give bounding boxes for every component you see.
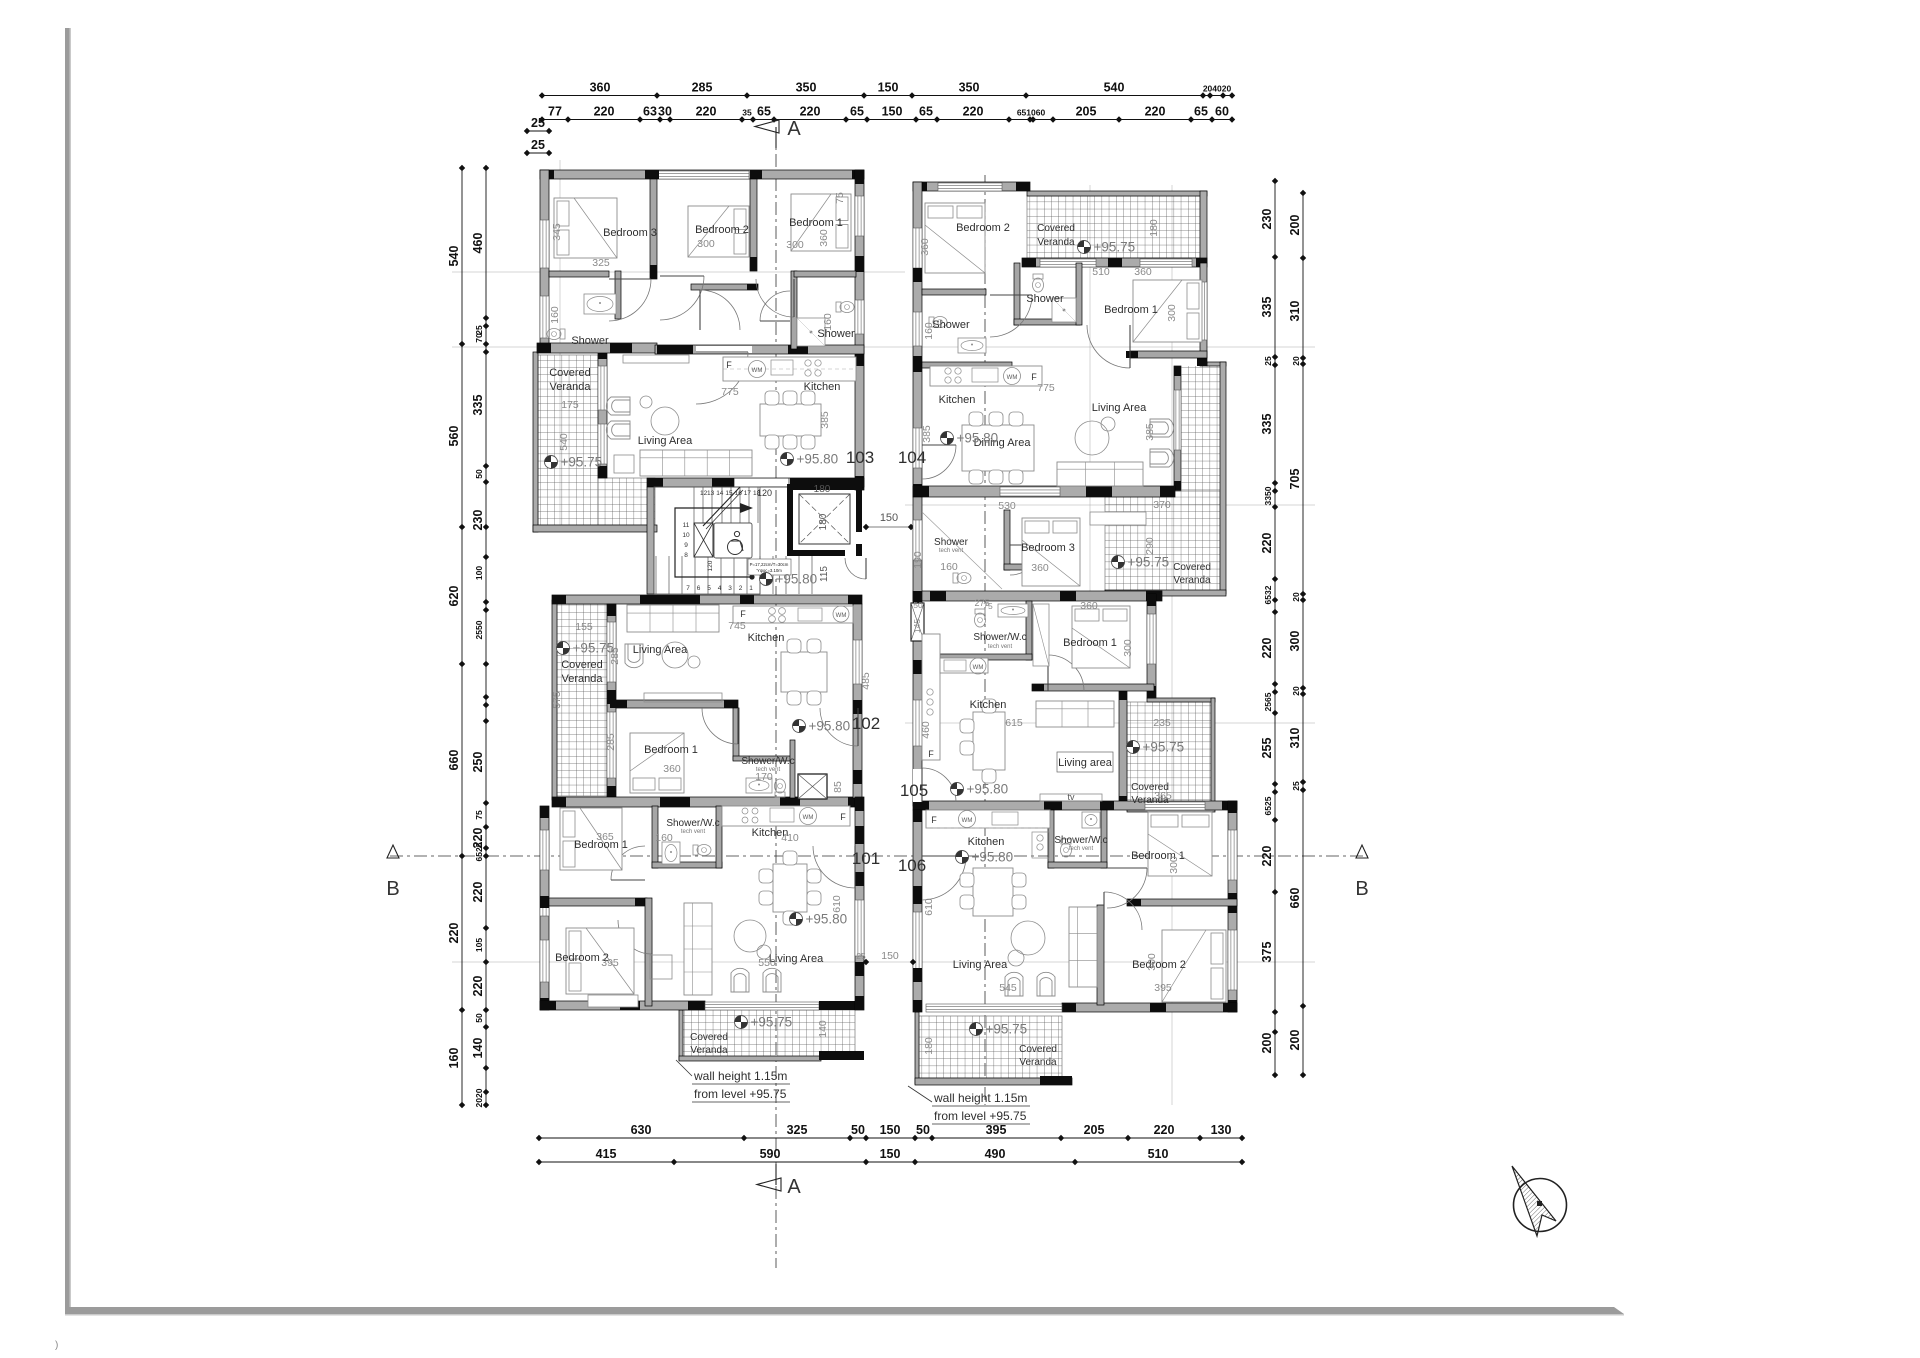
svg-text:651060: 651060 [1017,108,1046,118]
svg-text:285: 285 [692,81,713,95]
svg-text:220: 220 [1260,846,1274,867]
svg-text:Kitchen: Kitchen [748,632,785,644]
svg-text:2550: 2550 [474,620,484,639]
svg-text:510: 510 [1092,266,1110,278]
svg-text:tech vent: tech vent [939,548,964,554]
svg-text:Living Area: Living Area [638,435,693,447]
svg-text:Shower: Shower [932,319,970,331]
svg-text:Bedroom 1: Bedroom 1 [644,744,698,756]
svg-text:Bedroom 2: Bedroom 2 [1132,959,1186,971]
svg-text:4: 4 [718,585,722,592]
svg-text:180: 180 [1148,219,1160,237]
svg-text:WM: WM [962,818,973,824]
svg-text:103: 103 [846,448,874,467]
svg-text:65: 65 [1194,105,1208,119]
svg-text:250: 250 [471,752,485,773]
svg-text:F: F [931,815,937,825]
svg-text:385: 385 [921,425,933,443]
svg-text:350: 350 [959,81,980,95]
svg-text:WM: WM [803,815,814,821]
svg-text:tech vent: tech vent [988,644,1013,650]
svg-text:200: 200 [1288,215,1302,236]
svg-text:395: 395 [601,957,619,969]
svg-text:545: 545 [999,982,1017,994]
svg-text:75: 75 [834,192,846,204]
svg-text:180: 180 [818,513,829,530]
svg-text:200: 200 [1288,1030,1302,1051]
svg-text:155: 155 [575,621,593,633]
svg-text:20: 20 [1291,592,1301,602]
svg-text:+95.80: +95.80 [967,782,1009,797]
svg-text:tech vent: tech vent [1069,846,1094,852]
svg-text:+95.80: +95.80 [776,572,818,587]
svg-text:300: 300 [1146,953,1158,971]
svg-text:B: B [386,878,399,900]
svg-text:100: 100 [474,566,484,580]
svg-text:P=17,22cm/T=30cm: P=17,22cm/T=30cm [750,562,789,567]
svg-text:335: 335 [471,395,485,416]
svg-text:220: 220 [594,105,615,119]
svg-text:14: 14 [716,490,724,497]
svg-text:Bedroom 1: Bedroom 1 [789,217,843,229]
svg-text:660: 660 [447,750,461,771]
svg-text:310: 310 [1288,728,1302,749]
svg-text:Shower: Shower [934,537,969,548]
svg-text:540: 540 [447,246,461,267]
svg-text:150: 150 [878,81,899,95]
svg-text:2565: 2565 [1263,692,1273,711]
svg-text:+95.75: +95.75 [986,1022,1028,1037]
svg-text:660: 660 [1288,888,1302,909]
svg-text:220: 220 [963,105,984,119]
svg-text:220: 220 [471,976,485,997]
svg-text:3: 3 [728,585,732,592]
svg-text:9: 9 [684,542,688,549]
svg-text:160: 160 [447,1048,461,1069]
svg-text:13: 13 [707,490,715,497]
svg-text:Veranda: Veranda [562,673,604,685]
svg-text:35: 35 [742,108,752,118]
svg-text:170: 170 [755,771,773,783]
svg-text:235: 235 [1153,717,1171,729]
svg-text:WM: WM [973,665,984,671]
svg-text:75: 75 [474,810,484,820]
svg-text:F: F [740,609,746,619]
svg-text:590: 590 [760,1147,781,1161]
svg-text:290: 290 [1144,537,1156,555]
svg-text:Living area: Living area [1058,757,1113,769]
svg-text:+95.75: +95.75 [1128,555,1170,570]
svg-text:F: F [1031,372,1037,382]
svg-text:+95.80: +95.80 [797,452,839,467]
svg-text:Living Area: Living Area [953,959,1008,971]
svg-text:150: 150 [880,512,898,524]
svg-text:Kitchen: Kitchen [804,381,841,393]
svg-text:485: 485 [860,672,872,690]
svg-text:350: 350 [796,81,817,95]
svg-text:360: 360 [919,238,931,256]
svg-text:16: 16 [735,490,743,497]
svg-text:204020: 204020 [1203,84,1232,94]
svg-text:50: 50 [916,1123,930,1137]
svg-text:205: 205 [1084,1123,1105,1137]
svg-text:365: 365 [1154,790,1172,802]
svg-text:130: 130 [1211,1123,1232,1137]
svg-text:115: 115 [819,566,830,582]
svg-text:335: 335 [1260,297,1274,318]
svg-text:30: 30 [658,105,672,119]
svg-text:220: 220 [696,105,717,119]
svg-text:Shower/W.c: Shower/W.c [741,756,794,767]
svg-text:WM: WM [836,613,847,619]
svg-text:70: 70 [474,333,484,343]
svg-text:25: 25 [531,116,545,130]
svg-text:300: 300 [1168,856,1180,874]
svg-text:220: 220 [1154,1123,1175,1137]
svg-text:Veranda: Veranda [550,381,592,393]
svg-text:Veranda: Veranda [1037,237,1075,248]
svg-text:Covered: Covered [561,659,603,671]
svg-text:Kitchen: Kitchen [968,836,1005,848]
svg-text:175: 175 [561,399,579,411]
svg-text:615: 615 [1005,717,1023,729]
svg-text:Bedroom 1: Bedroom 1 [1104,304,1158,316]
svg-text:Covered: Covered [1019,1044,1057,1055]
svg-text:A: A [787,1176,801,1198]
svg-text:140: 140 [817,1020,829,1038]
svg-text:360: 360 [1134,266,1152,278]
svg-text:50: 50 [913,600,923,610]
svg-text:160: 160 [549,306,561,324]
svg-text:+95.75: +95.75 [1143,740,1185,755]
svg-text:395: 395 [1154,982,1172,994]
svg-text:Living Area: Living Area [633,644,688,656]
svg-text:101: 101 [852,849,880,868]
svg-text:345: 345 [551,223,563,241]
svg-text:325: 325 [592,257,610,269]
svg-text:Shower: Shower [571,335,609,347]
svg-text:230: 230 [1260,209,1274,230]
svg-text:50: 50 [474,1013,484,1023]
svg-text:630: 630 [631,1123,652,1137]
svg-text:120: 120 [707,560,714,571]
svg-text:385: 385 [1144,423,1156,441]
svg-text:460: 460 [471,233,485,254]
svg-text:5: 5 [707,585,711,592]
svg-text:360: 360 [1031,562,1049,574]
svg-text:140: 140 [471,1038,485,1059]
svg-text:Bedroom 1: Bedroom 1 [1063,637,1117,649]
svg-text:WM: WM [752,368,763,374]
svg-text:620: 620 [447,586,461,607]
svg-text:Covered: Covered [1037,223,1075,234]
svg-text:220: 220 [1260,638,1274,659]
svg-text:Covered: Covered [549,367,591,379]
svg-text:Living Area: Living Area [1092,402,1147,414]
svg-text:65: 65 [850,105,864,119]
svg-text:25: 25 [1291,781,1301,791]
svg-text:1: 1 [749,585,753,592]
svg-text:tv: tv [1067,792,1075,802]
svg-text:60: 60 [1215,105,1229,119]
svg-text:2020: 2020 [474,1088,484,1107]
svg-text:Covered: Covered [690,1032,728,1043]
svg-text:Living Area: Living Area [769,953,824,965]
svg-text:150: 150 [880,1123,901,1137]
svg-text:+95.75: +95.75 [561,455,603,470]
svg-text:335: 335 [1260,414,1274,435]
svg-text:85: 85 [832,781,844,793]
svg-text:Bedroom 3: Bedroom 3 [1021,542,1075,554]
svg-text:510: 510 [1148,1147,1169,1161]
svg-text:from level +95.75: from level +95.75 [694,1087,787,1101]
svg-text:745: 745 [728,620,746,632]
svg-text:17: 17 [744,490,752,497]
svg-text:10: 10 [682,532,690,539]
svg-text:WM: WM [1007,375,1018,381]
svg-text:415: 415 [596,1147,617,1161]
svg-text:775: 775 [721,386,739,398]
svg-text:300: 300 [786,239,804,251]
svg-text:Shower/W.c: Shower/W.c [666,818,719,829]
svg-text:B: B [1355,878,1368,900]
svg-text:from level +95.75: from level +95.75 [934,1109,1027,1123]
svg-text:160: 160 [940,561,958,573]
svg-text:tech vent: tech vent [681,829,706,835]
svg-text:Bedroom 2: Bedroom 2 [956,222,1010,234]
svg-text:220: 220 [1260,533,1274,554]
svg-text:540: 540 [558,433,570,451]
svg-text:25: 25 [531,138,545,152]
svg-text:25: 25 [856,951,866,961]
svg-text:F: F [840,812,846,822]
svg-text:205: 205 [1076,105,1097,119]
svg-text:11: 11 [683,522,690,529]
svg-text:77: 77 [548,105,562,119]
svg-text:Veranda: Veranda [1173,575,1211,586]
svg-text:300: 300 [697,238,715,250]
svg-text:150: 150 [882,105,903,119]
svg-text:wall height 1.15m: wall height 1.15m [933,1091,1027,1105]
svg-text:775: 775 [1037,382,1055,394]
svg-text:): ) [55,1340,58,1351]
svg-text:220: 220 [1145,105,1166,119]
svg-text:+95.75: +95.75 [751,1015,793,1030]
svg-text:160: 160 [923,322,935,340]
svg-text:365: 365 [596,831,614,843]
svg-text:F: F [726,360,732,370]
svg-text:375: 375 [1260,942,1274,963]
svg-text:Shower: Shower [1026,293,1064,305]
svg-text:+95.80: +95.80 [806,912,848,927]
svg-text:370: 370 [1153,499,1171,511]
svg-text:360: 360 [818,229,830,247]
svg-text:310: 310 [1288,301,1302,322]
svg-text:106: 106 [898,856,926,875]
svg-text:220: 220 [800,105,821,119]
svg-text:220: 220 [447,923,461,944]
svg-text:300: 300 [1166,304,1178,322]
svg-text:220: 220 [471,882,485,903]
svg-text:+95.80: +95.80 [809,719,851,734]
svg-text:63: 63 [643,105,657,119]
svg-text:A: A [787,118,801,140]
svg-text:Shower/W.c: Shower/W.c [1054,835,1107,846]
svg-text:6532: 6532 [1263,585,1273,604]
svg-text:+95.80: +95.80 [957,431,999,446]
svg-text:wall height 1.15m: wall height 1.15m [693,1069,787,1083]
svg-text:300: 300 [1288,631,1302,652]
svg-text:102: 102 [852,714,880,733]
svg-text:+95.75: +95.75 [573,641,615,656]
svg-text:50: 50 [851,1123,865,1137]
svg-text:Veranda: Veranda [1019,1057,1057,1068]
svg-text:160: 160 [822,313,834,331]
svg-text:+95.75: +95.75 [1094,240,1136,255]
svg-text:2: 2 [739,585,743,592]
svg-text:705: 705 [1288,469,1302,490]
svg-text:150: 150 [881,950,899,962]
svg-text:550: 550 [758,957,776,969]
svg-text:325: 325 [787,1123,808,1137]
svg-text:255: 255 [1260,738,1274,759]
svg-text:6525: 6525 [474,842,484,861]
svg-text:360: 360 [1080,600,1098,612]
svg-text:180: 180 [923,1037,935,1055]
svg-text:Shower/W.c: Shower/W.c [973,632,1026,643]
svg-text:3350: 3350 [1263,486,1273,505]
svg-text:+95.80: +95.80 [972,850,1014,865]
svg-text:8: 8 [684,552,688,559]
svg-text:385: 385 [819,411,831,429]
svg-text:6525: 6525 [1263,796,1273,815]
svg-text:120: 120 [757,488,772,498]
svg-text:180: 180 [814,484,831,495]
svg-text:360: 360 [590,81,611,95]
svg-text:20: 20 [1291,686,1301,696]
svg-text:F: F [928,749,934,759]
svg-text:530: 530 [998,500,1016,512]
svg-text:285: 285 [605,733,617,751]
svg-text:540: 540 [1104,81,1125,95]
svg-text:575: 575 [551,691,563,709]
svg-text:Covered: Covered [1173,562,1211,573]
svg-text:65: 65 [919,105,933,119]
svg-text:610: 610 [923,898,935,916]
svg-text:395: 395 [986,1123,1007,1137]
svg-text:200: 200 [1260,1033,1274,1054]
svg-text:Veranda: Veranda [690,1045,728,1056]
svg-text:190: 190 [912,551,924,569]
svg-text:7: 7 [686,585,690,592]
svg-text:15: 15 [725,490,733,497]
svg-text:460: 460 [920,721,932,739]
svg-text:105: 105 [900,781,928,800]
svg-text:610: 610 [831,895,843,913]
svg-text:285: 285 [609,647,621,665]
svg-text:560: 560 [447,426,461,447]
svg-text:105: 105 [474,938,484,952]
svg-text:50: 50 [474,469,484,479]
svg-text:75: 75 [983,601,993,611]
svg-text:25: 25 [1263,356,1273,366]
svg-text:160: 160 [655,832,673,844]
svg-text:410: 410 [781,832,799,844]
svg-text:360: 360 [663,763,681,775]
svg-text:300: 300 [1122,639,1134,657]
svg-text:Bedroom 2: Bedroom 2 [695,224,749,236]
svg-text:65: 65 [757,105,771,119]
svg-text:Bedroom 3: Bedroom 3 [603,227,657,239]
svg-text:490: 490 [985,1147,1006,1161]
svg-text:150: 150 [880,1147,901,1161]
svg-text:145: 145 [912,619,922,633]
svg-text:Kitchen: Kitchen [970,699,1007,711]
svg-text:104: 104 [898,448,926,467]
svg-text:6: 6 [697,585,701,592]
svg-text:20: 20 [1291,356,1301,366]
svg-text:Kitchen: Kitchen [939,394,976,406]
svg-text:230: 230 [471,510,485,531]
